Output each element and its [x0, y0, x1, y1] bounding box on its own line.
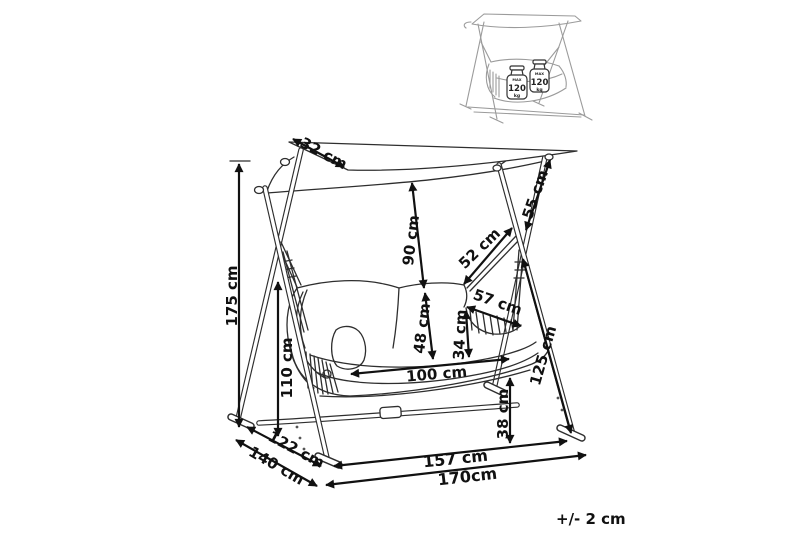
- max-load-value: 120: [531, 78, 549, 88]
- weight-tag-neck: [534, 64, 545, 69]
- max-load-unit: kg: [514, 93, 520, 99]
- dimension-overall-height: 175 cm: [223, 164, 241, 427]
- max-label: MAX: [535, 72, 544, 76]
- max-load-tag: MAX 120 kg: [507, 66, 527, 99]
- max-load-tag: MAX 120 kg: [530, 60, 549, 93]
- dimension-inner-base-width: 157 cm: [334, 441, 567, 471]
- stretcher-sleeve: [380, 406, 402, 418]
- dimension-canopy-to-backrest: 90 cm: [399, 183, 424, 288]
- inset-stretcher-bar: [468, 107, 584, 117]
- dimension-label: 110 cm: [278, 337, 296, 398]
- backrest-top-edge: [297, 281, 464, 288]
- inset-hanging-ropes: [481, 42, 559, 67]
- dimension-hanger-rope: 52 cm: [455, 224, 512, 284]
- inset-left-front-leg: [478, 24, 497, 119]
- left-bolster-pillow: [332, 326, 366, 369]
- dimension-label: 90 cm: [399, 214, 423, 266]
- leg-hole: [557, 397, 560, 400]
- tolerance-note: +/- 2 cm: [556, 510, 626, 528]
- inset-swing-frame: [460, 14, 592, 123]
- swing-dimension-diagram: MAX 120 kg MAX 120 kg: [0, 0, 800, 533]
- inset-max-load-drawing: MAX 120 kg MAX 120 kg: [460, 14, 592, 123]
- dimension-label: 38 cm: [494, 389, 512, 440]
- leg-hole: [561, 409, 564, 412]
- canopy-clamp: [281, 159, 290, 166]
- inset-left-rear-leg: [466, 22, 484, 106]
- max-load-value: 120: [508, 84, 526, 94]
- leg-hole: [299, 437, 302, 440]
- dimension-label: 100 cm: [405, 362, 467, 385]
- max-load-unit: kg: [536, 87, 542, 93]
- canopy-clamp: [493, 165, 501, 171]
- max-label: MAX: [512, 78, 521, 82]
- dimension-upper-leg-segment: 55 cm: [519, 160, 553, 230]
- dimension-diagram-page: MAX 120 kg MAX 120 kg: [0, 0, 800, 533]
- inset-bench-left-arm: [486, 64, 495, 97]
- inset-canopy: [472, 14, 581, 28]
- dimension-label: 55 cm: [519, 168, 553, 222]
- inset-bench-right-edge: [559, 66, 566, 87]
- dimension-label: 34 cm: [450, 309, 471, 360]
- bottom-stretcher-bar: [259, 405, 517, 423]
- dimension-backrest-height: 48 cm: [410, 293, 434, 359]
- dimension-armrest-height: 34 cm: [450, 309, 471, 360]
- dimension-annotations: 32 cm 175 cm 110 cm 90 cm 48 cm 52 cm 55…: [223, 134, 586, 490]
- backrest-right-corner: [464, 285, 467, 307]
- weight-tag-neck: [511, 70, 523, 75]
- dimension-label: 175 cm: [223, 265, 241, 326]
- inset-canopy-bracket: [464, 22, 471, 28]
- canopy-clamp: [255, 187, 264, 194]
- dimension-label: 32 cm: [297, 134, 350, 174]
- canopy-clamp: [545, 154, 553, 160]
- inset-right-front-leg: [559, 23, 585, 116]
- leg-hole: [296, 426, 299, 429]
- back-cushion-split: [393, 288, 399, 348]
